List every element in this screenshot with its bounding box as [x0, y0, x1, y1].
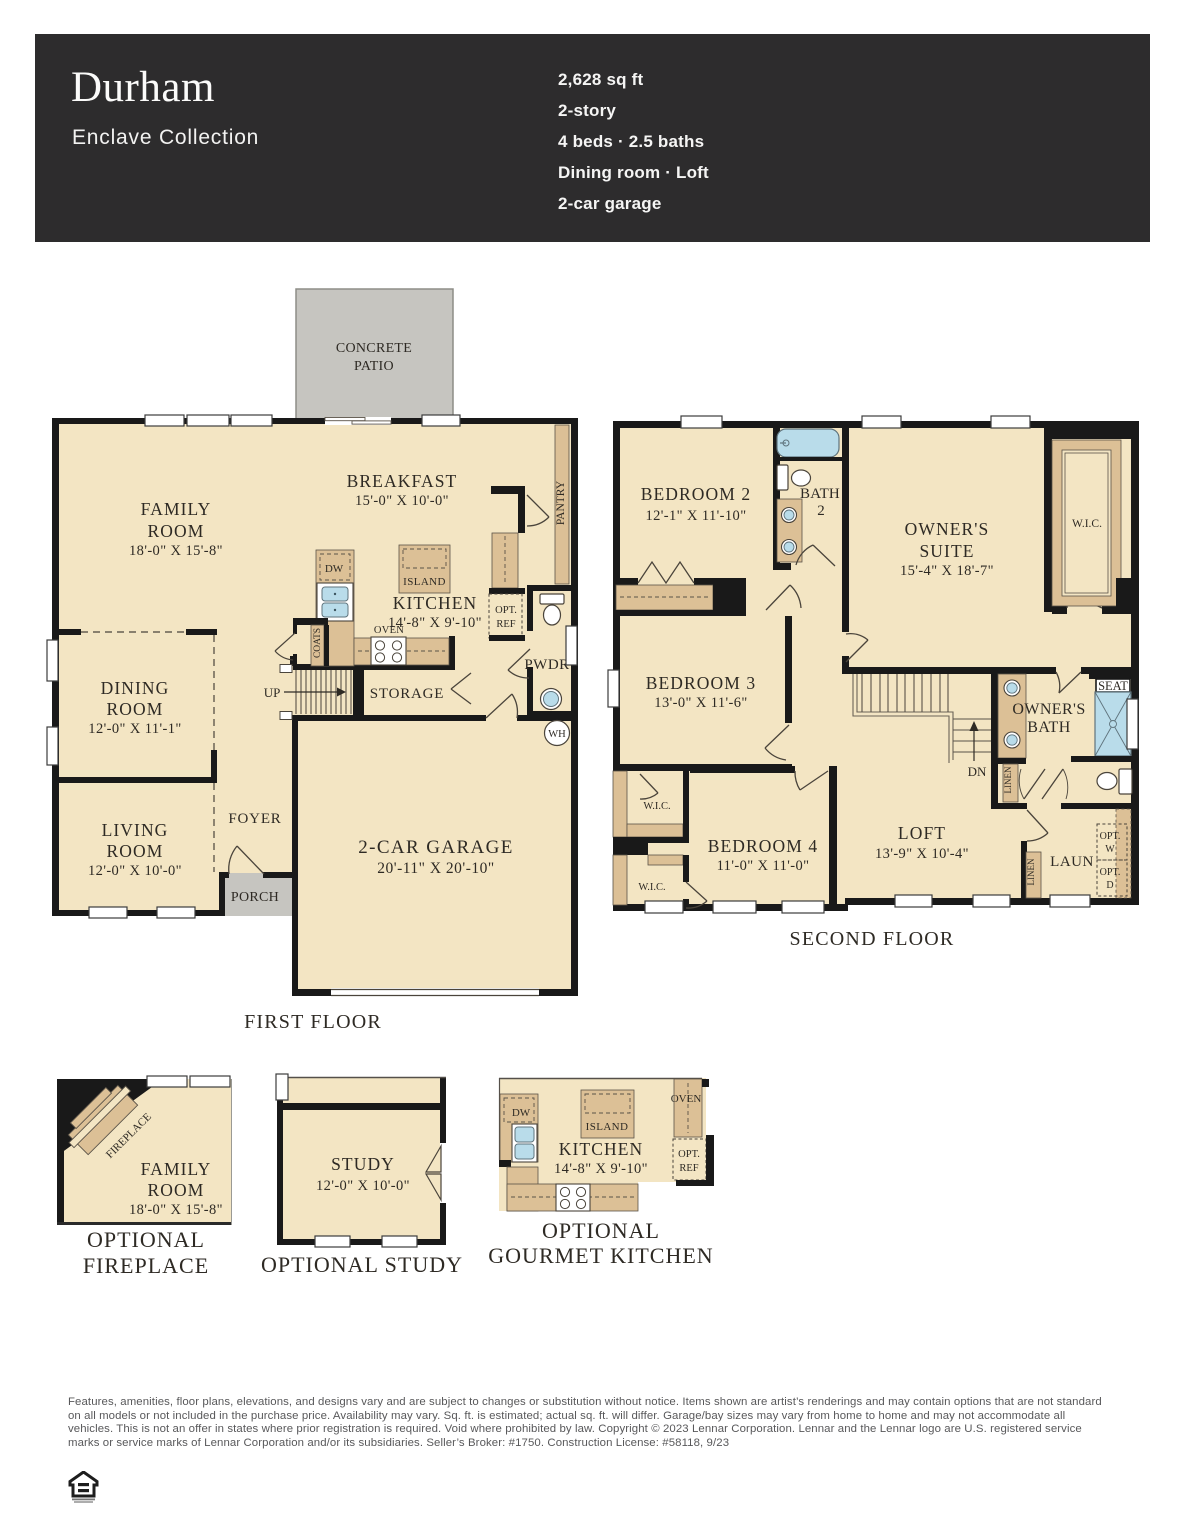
svg-text:BEDROOM 2: BEDROOM 2 [641, 484, 752, 504]
svg-text:CONCRETE: CONCRETE [336, 341, 412, 356]
svg-text:20'-11" X 20'-10": 20'-11" X 20'-10" [377, 860, 494, 877]
svg-text:GOURMET KITCHEN: GOURMET KITCHEN [488, 1243, 713, 1268]
svg-text:OPTIONAL STUDY: OPTIONAL STUDY [261, 1252, 463, 1277]
svg-text:FAMILY: FAMILY [141, 499, 212, 519]
svg-text:SUITE: SUITE [919, 541, 974, 561]
svg-text:ROOM: ROOM [148, 1180, 205, 1200]
svg-text:KITCHEN: KITCHEN [393, 593, 478, 613]
svg-text:OWNER'S: OWNER'S [905, 519, 990, 539]
svg-text:OWNER'S: OWNER'S [1012, 701, 1085, 718]
svg-text:UP: UP [264, 685, 281, 700]
svg-text:PATIO: PATIO [354, 359, 394, 374]
svg-text:ROOM: ROOM [107, 699, 164, 719]
svg-text:LINEN: LINEN [1026, 858, 1036, 885]
svg-text:FOYER: FOYER [228, 811, 281, 827]
svg-text:14'-8" X 9'-10": 14'-8" X 9'-10" [554, 1161, 648, 1177]
svg-text:SECOND FLOOR: SECOND FLOOR [790, 928, 955, 950]
svg-text:OPTIONAL: OPTIONAL [87, 1227, 205, 1252]
svg-text:OPT.: OPT. [1100, 831, 1121, 842]
svg-text:REF: REF [496, 619, 515, 630]
svg-text:15'-0" X 10'-0": 15'-0" X 10'-0" [355, 493, 449, 509]
svg-text:PORCH: PORCH [231, 890, 279, 905]
svg-text:BEDROOM 3: BEDROOM 3 [646, 673, 757, 693]
svg-text:LOFT: LOFT [898, 823, 946, 843]
svg-text:OPT.: OPT. [1100, 867, 1121, 878]
svg-text:W.I.C.: W.I.C. [638, 882, 665, 893]
svg-text:W.I.C.: W.I.C. [1072, 518, 1102, 530]
svg-text:OVEN: OVEN [671, 1093, 702, 1105]
svg-text:15'-4" X 18'-7": 15'-4" X 18'-7" [900, 563, 994, 579]
svg-text:W.I.C.: W.I.C. [643, 801, 670, 812]
svg-text:12'-1" X 11'-10": 12'-1" X 11'-10" [645, 508, 746, 524]
svg-text:OPTIONAL: OPTIONAL [542, 1218, 660, 1243]
svg-text:STUDY: STUDY [331, 1154, 395, 1174]
svg-text:STORAGE: STORAGE [370, 686, 445, 702]
svg-text:ROOM: ROOM [107, 841, 164, 861]
svg-text:W: W [1105, 844, 1115, 855]
svg-text:BATH: BATH [1027, 719, 1070, 736]
svg-text:BREAKFAST: BREAKFAST [347, 471, 458, 491]
svg-text:SEAT: SEAT [1098, 679, 1128, 693]
svg-text:2-CAR GARAGE: 2-CAR GARAGE [358, 837, 514, 858]
svg-text:12'-0" X 10'-0": 12'-0" X 10'-0" [88, 863, 182, 879]
svg-text:DN: DN [968, 764, 987, 779]
svg-text:OPT.: OPT. [678, 1149, 700, 1160]
svg-text:11'-0" X 11'-0": 11'-0" X 11'-0" [717, 858, 810, 874]
svg-text:BATH: BATH [800, 486, 840, 502]
svg-text:BEDROOM 4: BEDROOM 4 [708, 836, 819, 856]
svg-text:LIVING: LIVING [102, 820, 169, 840]
svg-text:COATS: COATS [313, 628, 323, 658]
svg-text:FIRST FLOOR: FIRST FLOOR [244, 1011, 382, 1033]
svg-text:18'-0" X 15'-8": 18'-0" X 15'-8" [129, 1202, 223, 1218]
svg-text:18'-0" X 15'-8": 18'-0" X 15'-8" [129, 543, 223, 559]
svg-text:WH: WH [548, 729, 566, 740]
svg-text:ISLAND: ISLAND [586, 1121, 629, 1133]
svg-text:2: 2 [817, 503, 825, 519]
svg-text:DINING: DINING [101, 678, 170, 698]
svg-text:12'-0" X 11'-1": 12'-0" X 11'-1" [88, 721, 181, 737]
svg-text:13'-9" X 10'-4": 13'-9" X 10'-4" [875, 846, 969, 862]
svg-text:FIREPLACE: FIREPLACE [83, 1253, 209, 1278]
svg-text:OPT.: OPT. [495, 605, 517, 616]
svg-text:ROOM: ROOM [148, 521, 205, 541]
svg-text:12'-0" X 10'-0": 12'-0" X 10'-0" [316, 1178, 410, 1194]
svg-text:FAMILY: FAMILY [141, 1159, 212, 1179]
svg-text:DW: DW [512, 1107, 531, 1119]
svg-text:D: D [1106, 880, 1113, 891]
svg-text:PWDR: PWDR [524, 657, 569, 673]
svg-text:13'-0" X 11'-6": 13'-0" X 11'-6" [654, 695, 747, 711]
svg-text:KITCHEN: KITCHEN [559, 1139, 644, 1159]
svg-text:ISLAND: ISLAND [403, 576, 446, 588]
svg-text:DW: DW [325, 563, 344, 575]
svg-text:LAUN: LAUN [1050, 854, 1094, 870]
svg-text:PANTRY: PANTRY [555, 480, 567, 525]
svg-text:LINEN: LINEN [1003, 766, 1013, 793]
svg-text:REF: REF [679, 1163, 698, 1174]
svg-text:14'-8" X 9'-10": 14'-8" X 9'-10" [388, 615, 482, 631]
